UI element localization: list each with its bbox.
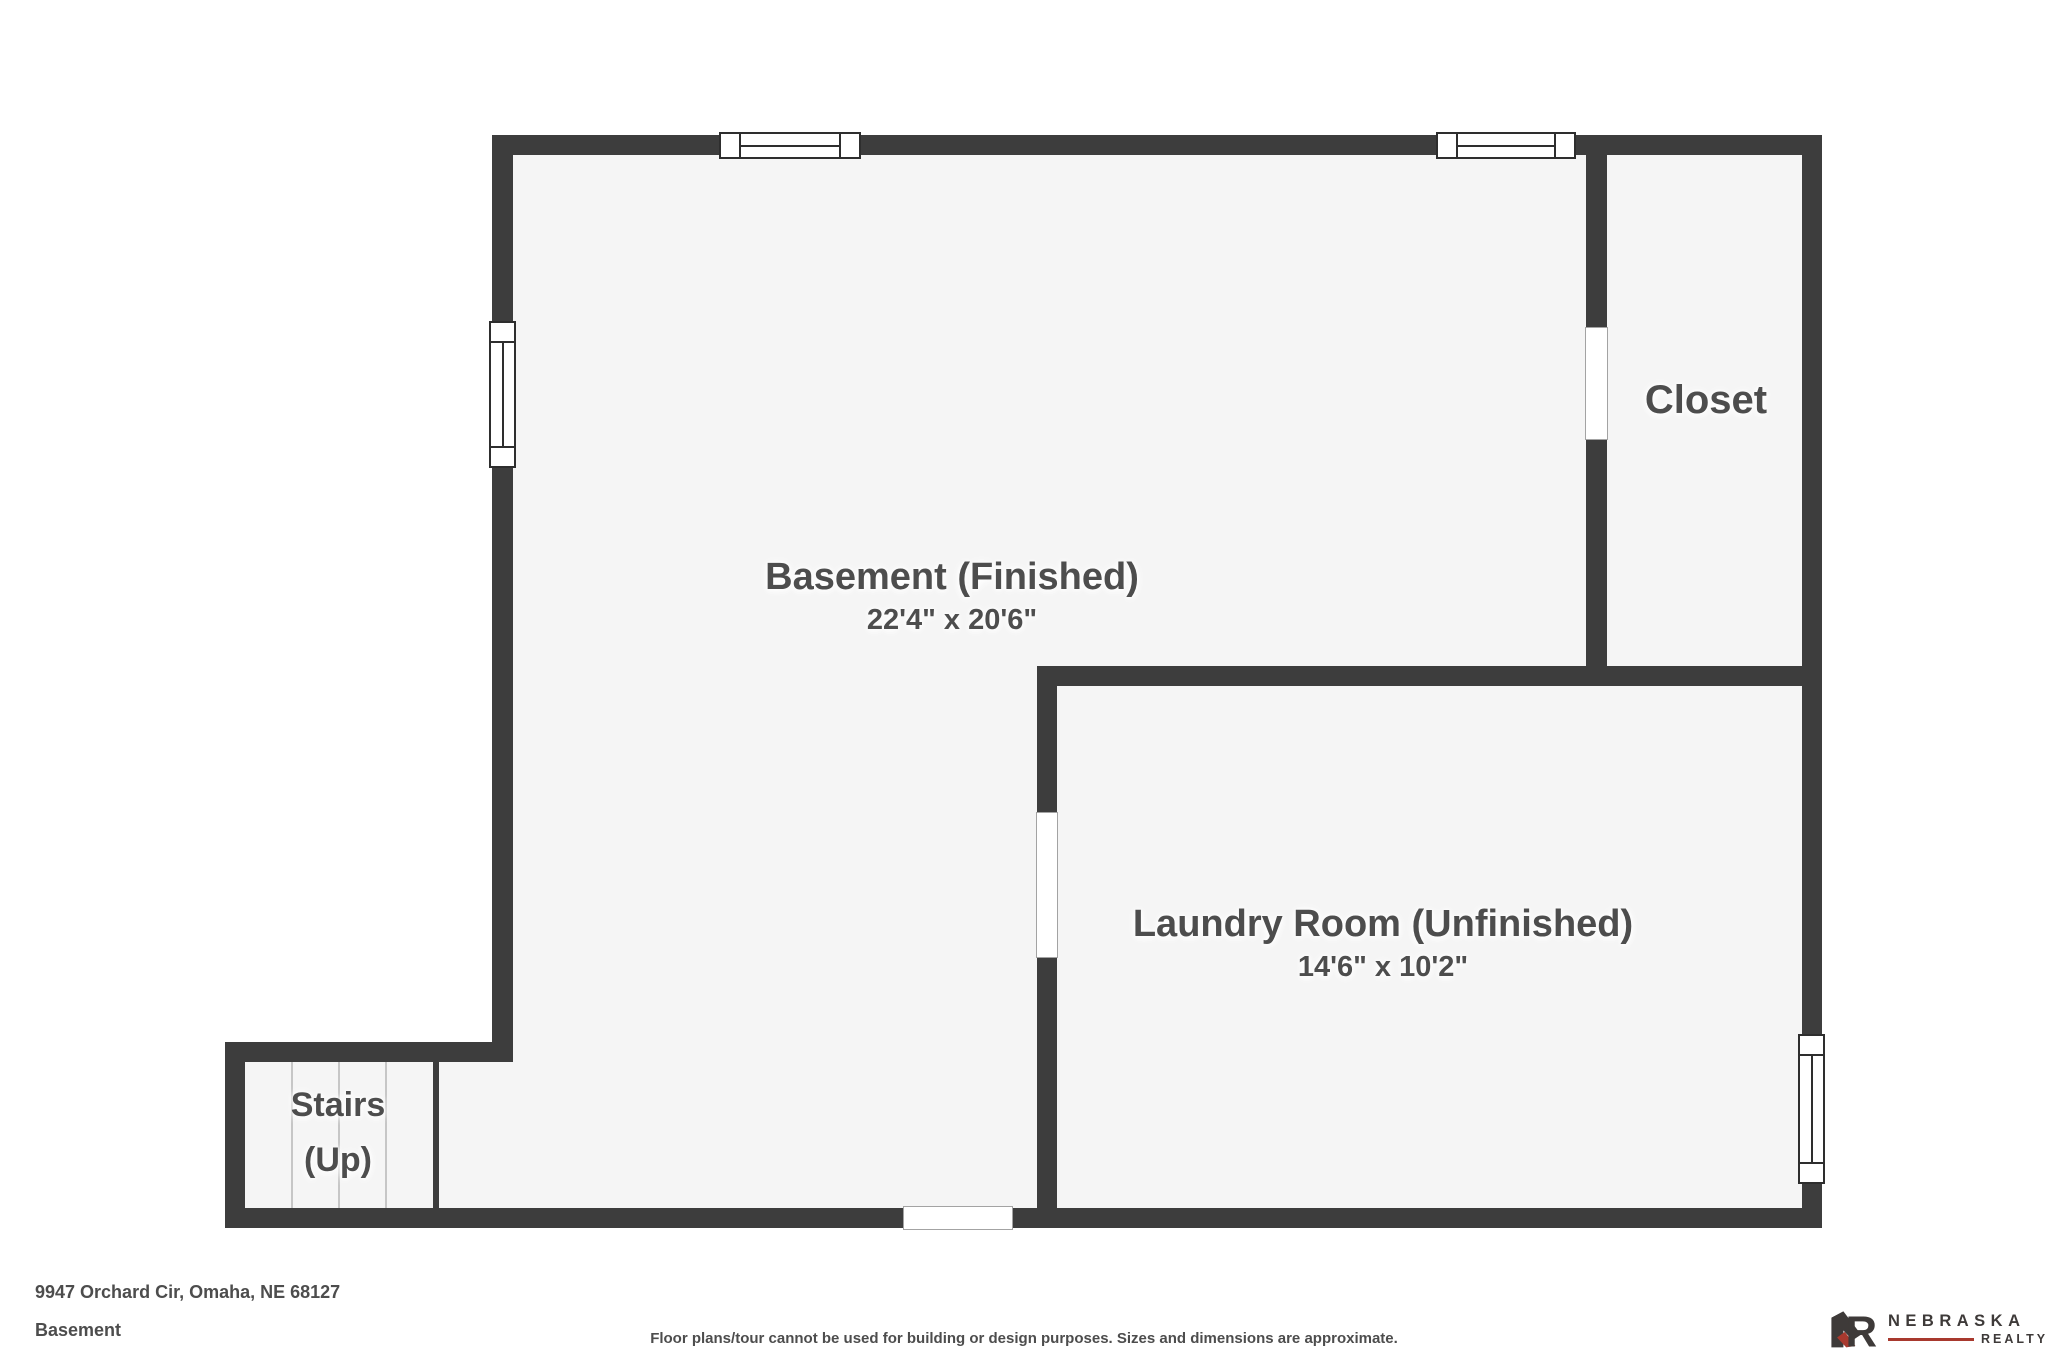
wall-bottom-exterior (225, 1208, 1822, 1228)
wall-closet-lower (1586, 440, 1607, 666)
floorplan-canvas: Basement (Finished) 22'4" x 20'6" Laundr… (0, 0, 2048, 1365)
window-top-right (1436, 132, 1576, 159)
laundry-dimensions: 14'6" x 10'2" (1133, 949, 1633, 985)
door-opening-closet (1585, 327, 1608, 440)
footer-address: 9947 Orchard Cir, Omaha, NE 68127 (35, 1282, 340, 1303)
door-opening-bottom-wall (903, 1206, 1013, 1230)
wall-laundry-top (1037, 666, 1822, 686)
logo-brand-sub: REALTY (1981, 1333, 2048, 1346)
nebraska-realty-monogram-icon: R (1830, 1310, 1878, 1348)
window-right-wall (1798, 1034, 1825, 1184)
logo-wordmark: NEBRASKA REALTY (1888, 1312, 2048, 1346)
wall-laundry-left-upper (1037, 666, 1057, 813)
closet-title: Closet (1645, 375, 1767, 425)
stairs-title: Stairs (291, 1078, 386, 1133)
laundry-title: Laundry Room (Unfinished) (1133, 901, 1633, 949)
window-top-left (719, 132, 861, 159)
monogram-letter-r: R (1846, 1310, 1878, 1348)
stair-tread-line (385, 1062, 387, 1208)
wall-stairs-top (225, 1042, 513, 1062)
wall-left-exterior (492, 135, 513, 1062)
room-label-stairs: Stairs (Up) (291, 1078, 386, 1188)
wall-closet-upper (1586, 135, 1607, 327)
basement-title: Basement (Finished) (765, 554, 1139, 602)
room-label-laundry: Laundry Room (Unfinished) 14'6" x 10'2" (1133, 901, 1633, 985)
basement-dimensions: 22'4" x 20'6" (765, 602, 1139, 638)
door-opening-laundry (1036, 812, 1058, 958)
wall-laundry-left-lower (1037, 958, 1057, 1208)
logo-brand-name: NEBRASKA (1888, 1312, 2048, 1330)
logo-accent-line (1888, 1338, 1974, 1341)
footer-disclaimer: Floor plans/tour cannot be used for buil… (650, 1330, 1398, 1347)
stairs-subtitle: (Up) (291, 1133, 386, 1188)
wall-top-exterior (492, 135, 1822, 155)
room-label-closet: Closet (1645, 375, 1767, 425)
window-left-wall (489, 321, 516, 468)
nebraska-realty-logo: R NEBRASKA REALTY (1830, 1310, 2048, 1348)
room-label-basement: Basement (Finished) 22'4" x 20'6" (765, 554, 1139, 638)
wall-stairs-divider (433, 1062, 439, 1208)
footer-floor-name: Basement (35, 1320, 121, 1341)
wall-stairs-left (225, 1042, 245, 1228)
